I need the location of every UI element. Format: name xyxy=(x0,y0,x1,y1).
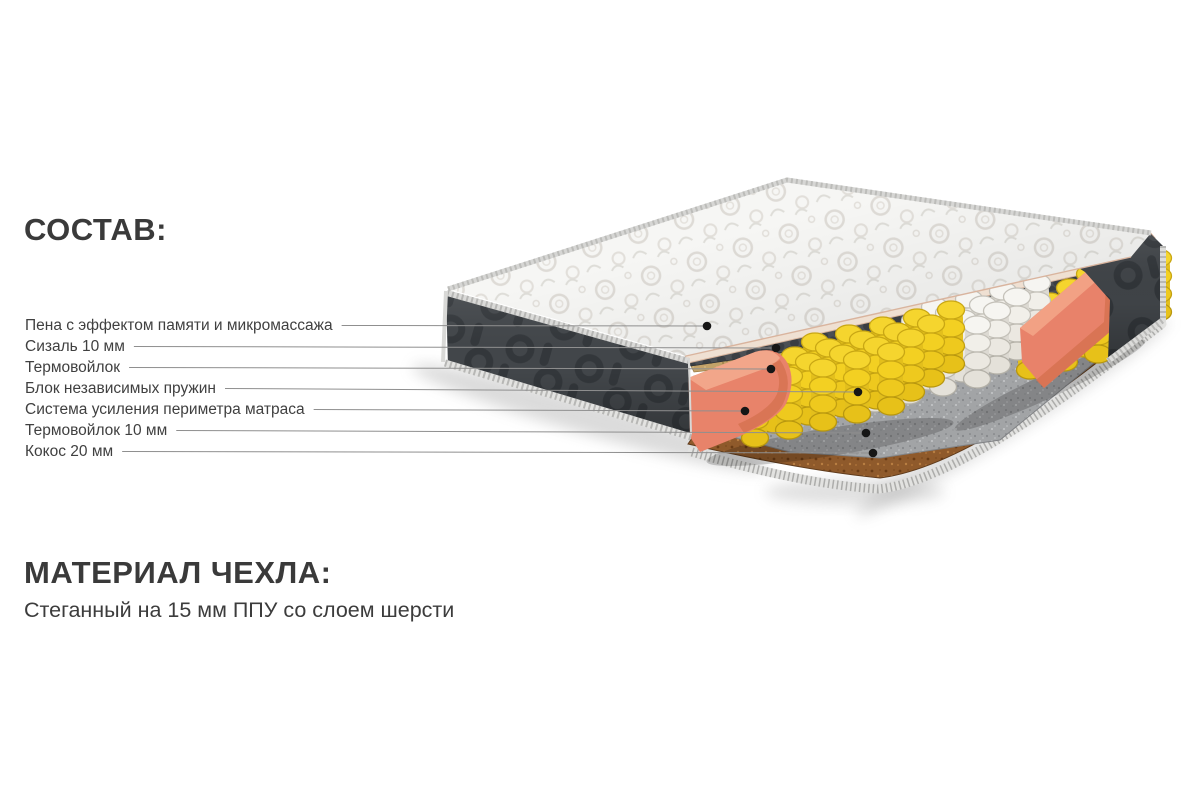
pocket-spring xyxy=(950,310,977,382)
pocket-spring xyxy=(830,345,857,417)
pocket-spring xyxy=(918,315,945,387)
pocket-spring xyxy=(836,325,863,397)
layer-label-coir: Кокос 20 мм xyxy=(25,441,113,462)
quilt-border-piping xyxy=(448,180,1151,289)
mattress-infographic: СОСТАВ: Пена с эффектом памяти и микрома… xyxy=(0,0,1191,794)
quilt-cut-edge xyxy=(685,256,1132,363)
pocket-spring xyxy=(850,331,877,403)
layer-label-sisal: Сизаль 10 мм xyxy=(25,336,125,357)
border-tape xyxy=(692,324,1162,489)
wall-top-tape xyxy=(447,293,689,361)
layer-label-perimeter: Система усиления периметра матраса xyxy=(25,399,305,420)
leader-line xyxy=(342,326,707,327)
pocket-spring xyxy=(884,323,911,395)
front-left-wall xyxy=(443,291,691,437)
pocket-spring xyxy=(1004,288,1031,360)
pocket-spring xyxy=(990,282,1017,354)
pocket-spring xyxy=(964,316,991,388)
layer-label-thermo-felt-10: Термовойлок 10 мм xyxy=(25,420,167,441)
quilt-top xyxy=(448,180,1151,356)
pocket-spring xyxy=(1145,249,1172,321)
pocket-spring xyxy=(1057,279,1084,351)
pocket-spring xyxy=(870,317,897,389)
pocket-spring xyxy=(922,298,949,370)
thermo-felt-bottom-layer xyxy=(694,322,1116,458)
pocket-spring xyxy=(1105,277,1132,349)
pocket-spring xyxy=(898,329,925,401)
pocket-spring xyxy=(844,351,871,423)
pocket-spring xyxy=(1085,291,1112,363)
layer-labels: Пена с эффектом памяти и микромассажа Си… xyxy=(25,315,333,462)
pocket-spring xyxy=(802,333,829,405)
pocket-spring xyxy=(1051,299,1078,371)
pocket-spring xyxy=(916,318,943,390)
leader-dot xyxy=(741,407,750,416)
perimeter-rail-right xyxy=(1020,270,1112,388)
pocket-spring xyxy=(1125,263,1152,335)
spring-block-white-middle xyxy=(862,274,1051,412)
mattress-bottom-edge xyxy=(688,308,1162,489)
pocket-spring xyxy=(882,326,909,398)
pocket-spring xyxy=(1091,271,1118,343)
pocket-spring xyxy=(796,353,823,425)
pocket-spring xyxy=(878,343,905,415)
pocket-spring xyxy=(896,332,923,404)
layer-label-memory-foam: Пена с эффектом памяти и микромассажа xyxy=(25,315,333,336)
pocket-spring xyxy=(1024,274,1051,346)
pocket-spring xyxy=(742,375,769,447)
pocket-spring xyxy=(904,309,931,381)
pocket-spring xyxy=(938,301,965,373)
pocket-spring xyxy=(936,304,963,376)
leader-dot xyxy=(854,388,863,397)
pocket-spring xyxy=(776,367,803,439)
pocket-spring xyxy=(864,337,891,409)
quilt-cut-edge-right xyxy=(1127,231,1155,262)
pocket-spring xyxy=(1037,293,1064,365)
spring-shadows xyxy=(704,330,1150,476)
cover-material-description: Стеганный на 15 мм ППУ со слоем шерсти xyxy=(24,598,454,623)
pocket-spring xyxy=(1071,285,1098,357)
pocket-spring xyxy=(956,290,983,362)
leader-line xyxy=(314,410,745,412)
composition-title: СОСТАВ: xyxy=(24,212,167,248)
pocket-spring xyxy=(970,296,997,368)
floor-shadow xyxy=(407,306,1177,529)
pocket-spring xyxy=(1017,307,1044,379)
pocket-spring xyxy=(816,339,843,411)
leader-dot xyxy=(869,449,878,458)
memory-foam-layer xyxy=(688,263,1129,366)
leader-dot xyxy=(767,365,776,374)
pocket-spring xyxy=(1077,265,1104,337)
leader-dot xyxy=(862,429,871,438)
pocket-spring xyxy=(810,359,837,431)
coconut-coir-layer xyxy=(688,308,1150,478)
pocket-spring xyxy=(782,347,809,419)
pocket-spring xyxy=(862,340,889,412)
pocket-spring xyxy=(902,312,929,384)
wall-bottom-tape xyxy=(445,363,691,437)
cover-material-title: МАТЕРИАЛ ЧЕХЛА: xyxy=(24,555,331,591)
pocket-spring xyxy=(930,324,957,396)
leader-dot xyxy=(772,344,781,353)
pocket-spring xyxy=(1111,257,1138,329)
spring-block-yellow-right xyxy=(1017,249,1172,379)
border-tape-stripes xyxy=(692,324,1162,489)
leader-dot xyxy=(703,322,712,331)
layer-label-thermo-felt: Термовойлок xyxy=(25,357,120,378)
right-wall xyxy=(1060,233,1163,361)
perimeter-rail-front xyxy=(688,350,792,452)
spring-block-yellow-front xyxy=(742,301,965,447)
pocket-spring xyxy=(984,302,1011,374)
pocket-spring xyxy=(762,361,789,433)
layer-label-springs: Блок независимых пружин xyxy=(25,378,216,399)
sisal-layer xyxy=(691,303,1117,372)
